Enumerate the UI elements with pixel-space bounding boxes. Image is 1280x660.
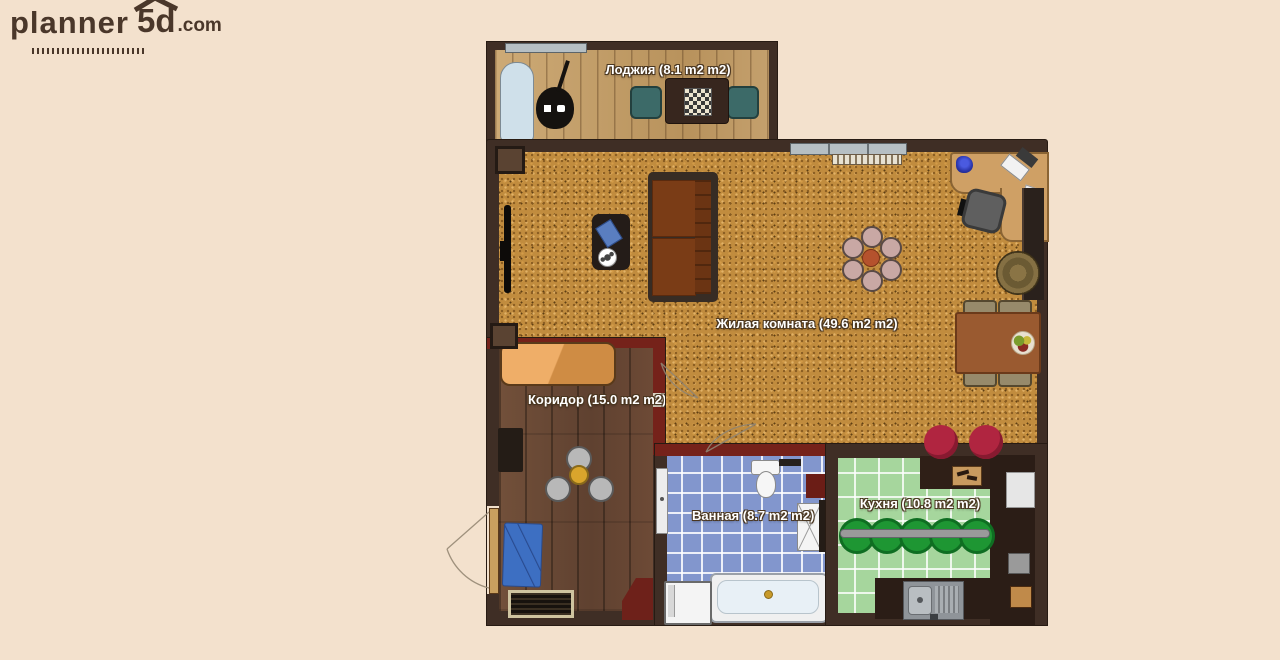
loggia-chair-left[interactable] — [630, 86, 662, 119]
lamp-shade — [842, 237, 864, 259]
lamp-shade — [880, 259, 902, 281]
bathroom-door[interactable] — [656, 468, 668, 534]
kitchen-counter-bottom[interactable] — [875, 578, 995, 619]
stool-rail — [840, 529, 990, 538]
vacuum-cleaner[interactable] — [536, 87, 574, 129]
roof-icon — [133, 0, 179, 12]
refrigerator[interactable] — [1006, 472, 1035, 508]
lamp-shade — [880, 237, 902, 259]
red-stool[interactable] — [924, 425, 958, 459]
living-room-label: Жилая комната (49.6 m2 m2) — [716, 316, 897, 331]
room-corridor[interactable]: Коридор (15.0 m2 m2) — [487, 338, 665, 625]
vacuum-detail — [544, 105, 551, 112]
small-appliance[interactable] — [1008, 553, 1030, 574]
chess-board — [684, 88, 712, 116]
logo-text-planner: planner — [10, 9, 129, 37]
washer-detail — [668, 585, 675, 617]
sink-drain — [917, 597, 923, 603]
bathroom-label: Ванная (8.7 m2 m2) — [692, 508, 814, 523]
kitchen-counter-top[interactable] — [920, 456, 995, 489]
entry-door[interactable] — [489, 508, 499, 594]
sofa-cushion — [652, 180, 696, 237]
ironing-board[interactable] — [500, 62, 534, 142]
red-stool[interactable] — [969, 425, 1003, 459]
wall-junction — [490, 323, 518, 349]
loggia-window[interactable] — [505, 43, 587, 53]
dining-table[interactable] — [955, 312, 1041, 374]
planner5d-canvas: planner 5d .com — [0, 0, 1280, 660]
board-detail — [967, 475, 978, 481]
lamp-shade — [842, 259, 864, 281]
wall-tv-mount — [500, 241, 505, 261]
sofa[interactable] — [648, 172, 718, 302]
kitchen-label: Кухня (10.8 m2 m2) — [860, 496, 980, 511]
logo-text-com: .com — [177, 15, 221, 37]
room-loggia[interactable]: Лоджия (8.1 m2 m2) — [487, 42, 777, 152]
loggia-chair-right[interactable] — [727, 86, 759, 119]
logo-barcode — [32, 48, 144, 54]
fruit-bowl — [1011, 331, 1035, 355]
corridor-label: Коридор (15.0 m2 m2) — [528, 392, 665, 407]
desk-vase[interactable] — [956, 156, 973, 173]
room-kitchen[interactable]: Кухня (10.8 m2 m2) — [826, 444, 1047, 625]
bathroom-wall-cabinet[interactable] — [806, 474, 826, 498]
living-radiator[interactable] — [832, 154, 902, 165]
ceiling-lamp[interactable] — [862, 249, 880, 267]
wall-junction — [495, 146, 525, 174]
door-knob — [660, 497, 664, 501]
book — [595, 219, 622, 248]
floor-plan: Лоджия (8.1 m2 m2) — [487, 42, 1047, 625]
logo-5d-wrap: 5d — [137, 8, 176, 37]
lamp-shade — [861, 270, 883, 292]
slatted-bench[interactable] — [508, 590, 574, 618]
toilet[interactable] — [756, 471, 776, 498]
washing-machine[interactable] — [664, 581, 712, 625]
soccer-ball — [598, 248, 617, 267]
room-bathroom[interactable]: Ванная (8.7 m2 m2) — [655, 444, 826, 625]
bathroom-top-wall — [655, 444, 826, 456]
coffee-table[interactable] — [592, 214, 630, 270]
sink-faucet — [930, 614, 938, 620]
kitchen-sink[interactable] — [903, 581, 964, 620]
vacuum-detail — [557, 105, 565, 112]
chandelier[interactable] — [569, 465, 589, 485]
sofa-cushion — [652, 238, 696, 296]
chandelier-arm — [588, 476, 614, 502]
chandelier-arm — [545, 476, 571, 502]
kitchen-wall-item[interactable] — [1010, 586, 1032, 608]
floor-barrel[interactable] — [996, 251, 1040, 295]
bathtub[interactable] — [710, 573, 826, 623]
bathtub-drain — [764, 590, 773, 599]
sink-cabinet — [819, 500, 826, 552]
sofa-backrest — [695, 180, 711, 294]
blue-rug[interactable] — [502, 522, 543, 587]
chess-table[interactable] — [665, 78, 729, 124]
sink-basin — [908, 586, 932, 615]
kitchen-counter-right[interactable] — [990, 455, 1035, 625]
wall-tv[interactable] — [504, 205, 511, 293]
corridor-wall-cabinet[interactable] — [498, 428, 523, 472]
planner5d-logo[interactable]: planner 5d .com — [10, 8, 222, 37]
loggia-label: Лоджия (8.1 m2 m2) — [605, 62, 730, 77]
sink-drainer — [935, 586, 959, 613]
cutting-board — [952, 466, 982, 486]
towel-rail[interactable] — [779, 459, 801, 466]
